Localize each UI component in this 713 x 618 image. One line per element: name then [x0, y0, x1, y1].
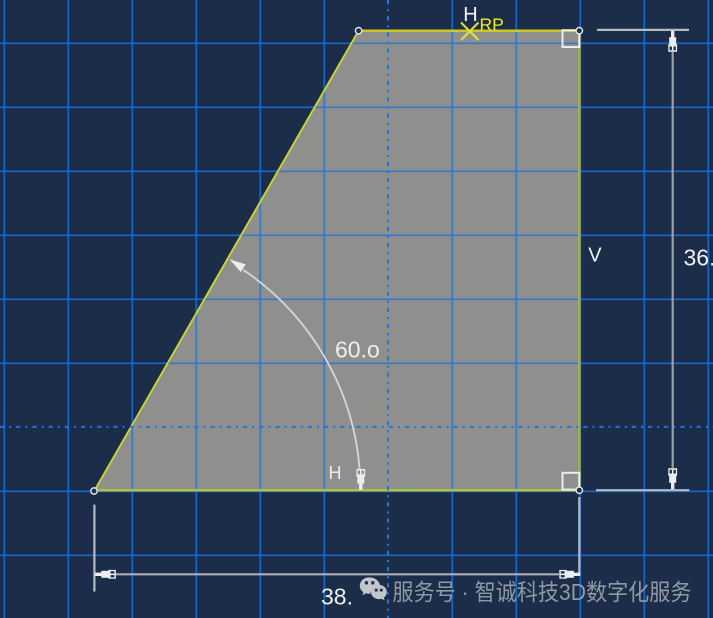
svg-text:36.: 36.	[684, 245, 713, 271]
svg-text:60.o: 60.o	[335, 337, 380, 363]
svg-text:38.: 38.	[321, 584, 353, 610]
svg-text:服务号 · 智诚科技3D数字化服务: 服务号 · 智诚科技3D数字化服务	[393, 579, 692, 605]
svg-text:RP: RP	[480, 15, 504, 35]
svg-text:H: H	[329, 463, 342, 483]
svg-text:H: H	[463, 4, 477, 26]
svg-text:V: V	[588, 245, 602, 267]
